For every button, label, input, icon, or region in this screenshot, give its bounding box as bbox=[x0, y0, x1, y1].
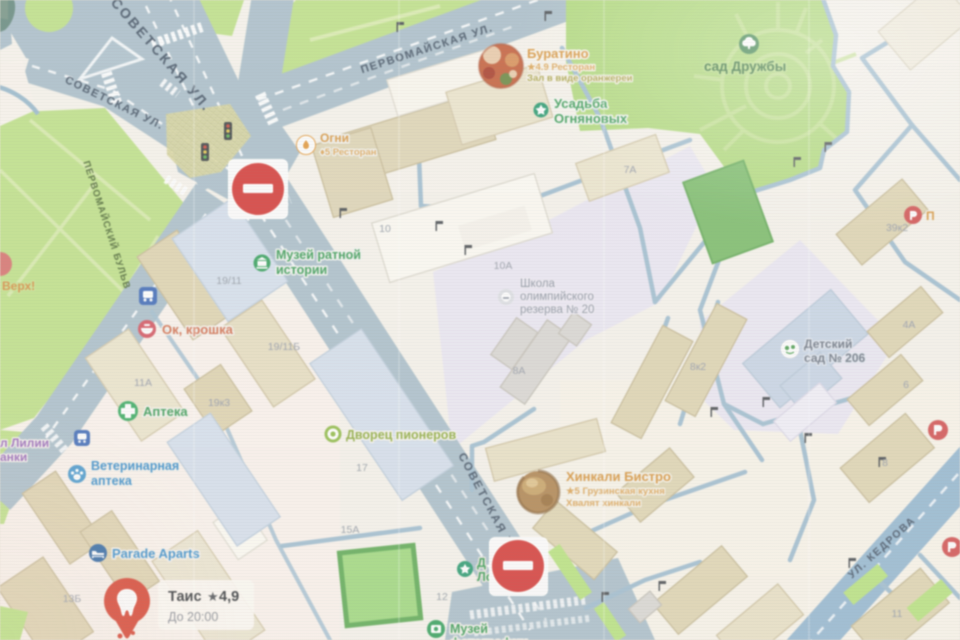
svg-text:19/11Б: 19/11Б bbox=[268, 341, 300, 353]
svg-text:12: 12 bbox=[436, 591, 448, 603]
svg-text:л Лилии: л Лилии bbox=[0, 436, 49, 450]
svg-text:Ок, крошка: Ок, крошка bbox=[162, 322, 234, 337]
svg-text:Верх!: Верх! bbox=[2, 279, 35, 293]
svg-text:Музей ратной: Музей ратной bbox=[276, 248, 361, 262]
svg-text:11А: 11А bbox=[134, 377, 152, 389]
svg-text:19к3: 19к3 bbox=[208, 397, 230, 409]
svg-text:★: ★ bbox=[207, 589, 219, 604]
svg-text:Д: Д bbox=[477, 556, 486, 570]
svg-text:Детский: Детский bbox=[804, 337, 852, 351]
svg-text:Школа: Школа bbox=[520, 278, 556, 290]
svg-text:сад № 206: сад № 206 bbox=[804, 351, 866, 365]
svg-text:П: П bbox=[926, 209, 935, 223]
svg-text:истории: истории bbox=[276, 263, 327, 277]
svg-text:♦5 Ресторан: ♦5 Ресторан bbox=[320, 147, 377, 158]
svg-text:15А: 15А bbox=[341, 524, 360, 536]
svg-text:17: 17 bbox=[356, 462, 368, 474]
svg-text:Огняновых: Огняновых bbox=[554, 111, 628, 126]
svg-text:7А: 7А bbox=[624, 164, 637, 176]
svg-text:фотографии: фотографии bbox=[450, 636, 528, 640]
svg-text:Буратино: Буратино bbox=[527, 46, 589, 61]
svg-text:Дворец пионеров: Дворец пионеров bbox=[346, 428, 456, 442]
svg-text:19/11: 19/11 bbox=[216, 275, 242, 287]
svg-text:6: 6 bbox=[903, 379, 909, 391]
svg-text:Огни: Огни bbox=[320, 131, 349, 145]
svg-text:4А: 4А bbox=[903, 319, 916, 331]
svg-text:Усадьба: Усадьба bbox=[554, 96, 608, 111]
svg-text:★4.9 Ресторан: ★4.9 Ресторан bbox=[527, 62, 595, 73]
svg-text:8к2: 8к2 bbox=[690, 361, 706, 373]
svg-text:олимпийского: олимпийского bbox=[520, 291, 594, 303]
svg-text:Хинкали Бистро: Хинкали Бистро bbox=[566, 469, 671, 484]
svg-text:13Б: 13Б bbox=[63, 593, 82, 605]
svg-text:10А: 10А bbox=[494, 260, 513, 272]
svg-text:39к2: 39к2 bbox=[886, 222, 908, 234]
svg-text:сад Дружбы: сад Дружбы bbox=[704, 59, 786, 74]
svg-text:Музей: Музей bbox=[450, 622, 488, 636]
svg-text:8А: 8А bbox=[513, 365, 526, 377]
svg-text:Parade Aparts: Parade Aparts bbox=[112, 546, 200, 561]
svg-text:★5 Грузинская кухня: ★5 Грузинская кухня bbox=[566, 486, 665, 497]
svg-text:Таис: Таис bbox=[168, 589, 202, 605]
svg-text:анки: анки bbox=[0, 450, 27, 464]
svg-text:До 20:00: До 20:00 bbox=[168, 610, 218, 624]
svg-text:4,9: 4,9 bbox=[219, 589, 239, 605]
svg-text:Зал в виде оранжереи: Зал в виде оранжереи bbox=[527, 73, 633, 84]
svg-text:аптека: аптека bbox=[91, 474, 133, 488]
svg-text:Аптека: Аптека bbox=[143, 404, 188, 419]
svg-text:10: 10 bbox=[379, 223, 391, 235]
svg-text:резерва № 20: резерва № 20 bbox=[520, 304, 594, 316]
svg-text:11: 11 bbox=[892, 608, 903, 620]
svg-text:8: 8 bbox=[882, 457, 888, 469]
svg-text:Ветеринарная: Ветеринарная bbox=[91, 459, 179, 473]
